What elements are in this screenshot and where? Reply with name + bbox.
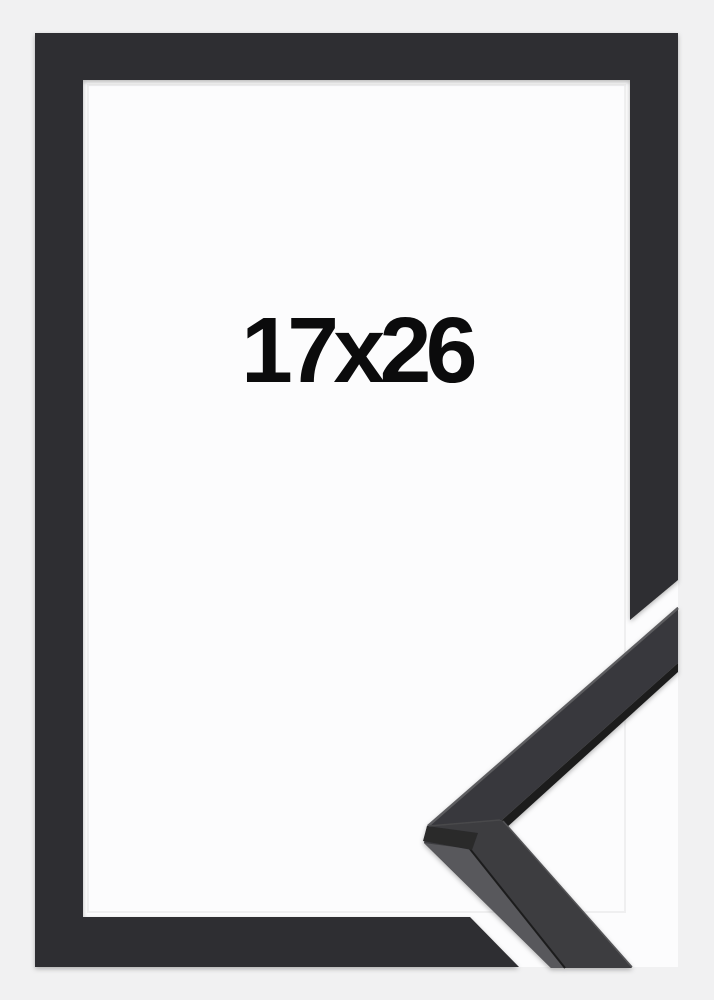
- frame-opening-white-area: [83, 80, 678, 967]
- frame-graphic: [0, 0, 714, 1000]
- product-image: 17x26: [0, 0, 714, 1000]
- size-label: 17x26: [83, 304, 630, 397]
